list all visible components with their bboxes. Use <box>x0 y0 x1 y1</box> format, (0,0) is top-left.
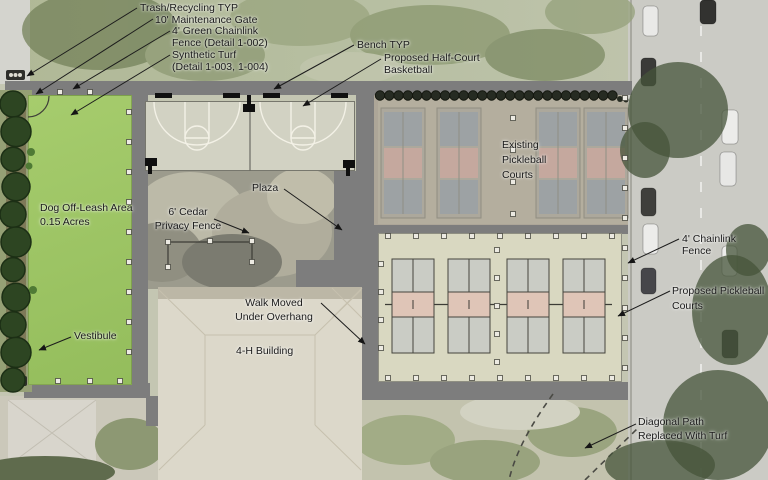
label-vestibule: Vestibule <box>74 330 117 342</box>
planting-bed <box>6 98 26 384</box>
label-proposed-courts: Proposed Pickleball Courts <box>672 284 764 314</box>
label-trash-recycling: Trash/Recycling TYP <box>140 2 238 14</box>
path-south-of-dog-area <box>24 383 150 398</box>
plaza-walk <box>334 171 362 267</box>
label-green-chainlink-fence: 4' Green Chainlink Fence (Detail 1-002) <box>172 25 268 49</box>
road-curb <box>630 0 632 480</box>
aerial-trees-top <box>0 0 628 84</box>
label-diagonal-path: Diagonal Path Replaced With Turf <box>638 415 727 443</box>
aerial-lawn-bottom-right <box>362 398 628 480</box>
label-half-court: Proposed Half-Court Basketball <box>384 52 480 76</box>
label-synthetic-turf: Synthetic Turf (Detail 1-003, 1-004) <box>172 49 268 73</box>
label-4h-building: 4-H Building <box>236 345 293 357</box>
proposed-pickleball-area <box>378 233 622 382</box>
existing-pickleball-area <box>374 95 628 225</box>
perimeter-path-top <box>5 81 632 95</box>
label-plaza: Plaza <box>252 182 278 194</box>
site-plan: Trash/Recycling TYP 10' Maintenance Gate… <box>0 0 768 480</box>
walk-south-of-proposed-courts <box>356 382 628 400</box>
aerial-houses-bottom-left <box>0 396 160 480</box>
label-dog-area: Dog Off-Leash Area 0.15 Acres <box>40 201 133 229</box>
label-bench: Bench TYP <box>357 39 410 51</box>
label-walk-moved: Walk Moved Under Overhang <box>228 296 320 324</box>
label-existing-courts: Existing Pickleball Courts <box>502 138 546 183</box>
aerial-sidewalk-corner <box>0 0 30 84</box>
label-chainlink-fence: 4' Chainlink Fence <box>682 233 768 257</box>
half-court-basketball-area <box>145 101 355 171</box>
label-cedar-fence: 6' Cedar Privacy Fence <box>142 205 234 233</box>
